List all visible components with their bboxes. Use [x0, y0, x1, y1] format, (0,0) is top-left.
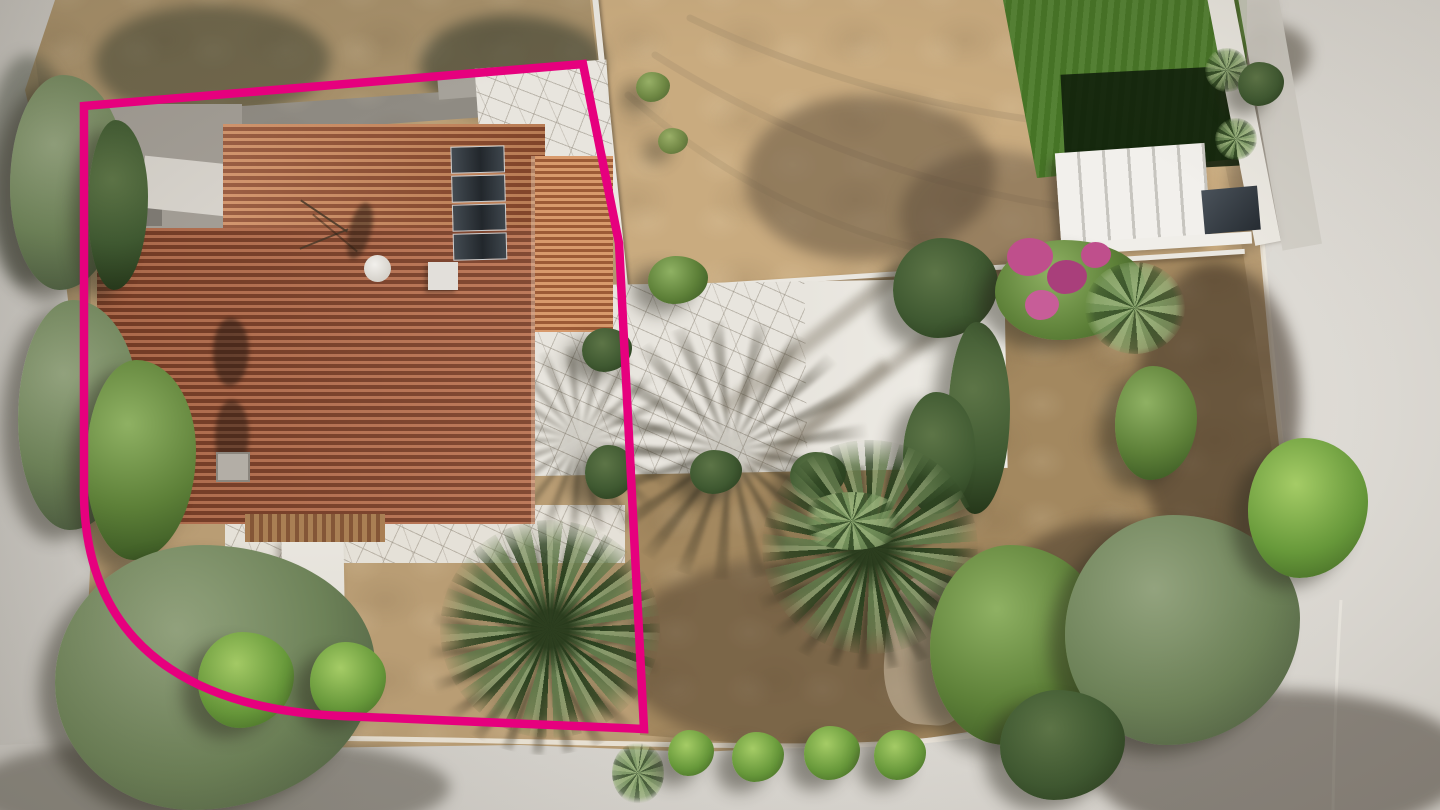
- boundary-outline: [84, 64, 644, 729]
- property-boundary: [0, 0, 1440, 810]
- aerial-photo: [0, 0, 1440, 810]
